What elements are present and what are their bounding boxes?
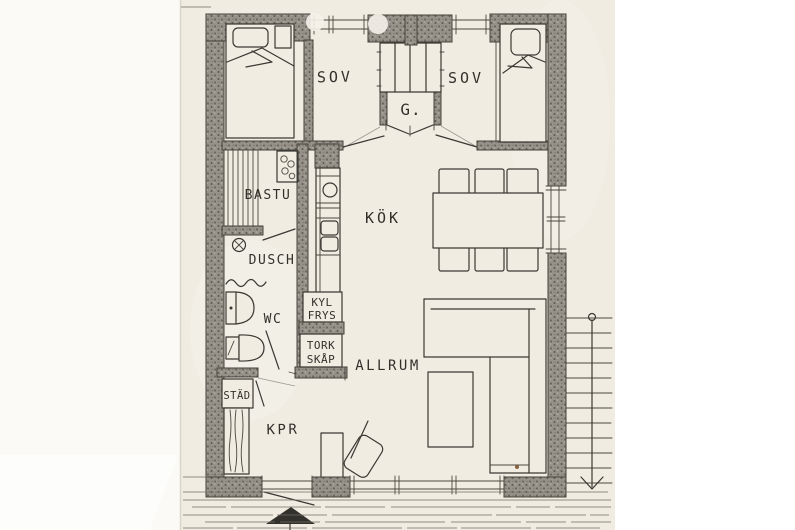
label-drying-line1: TORK xyxy=(307,339,336,352)
wc-sink xyxy=(226,292,254,324)
sauna-bench-edge xyxy=(222,226,263,235)
label-cleaning-closet: STÄD xyxy=(223,389,250,402)
label-living-room: ALLRUM xyxy=(355,358,421,374)
coat-rack xyxy=(224,408,249,474)
label-drying-line2: SKÅP xyxy=(307,353,336,366)
bed-right xyxy=(500,24,546,142)
paper-background xyxy=(0,0,795,530)
wall-fridge-divider xyxy=(299,322,344,334)
chair xyxy=(475,246,504,271)
wall-bottom-pier xyxy=(312,477,350,497)
paper-corner-highlight xyxy=(0,455,178,530)
label-shower: DUSCH xyxy=(249,253,296,268)
label-bedroom-right: SOV xyxy=(448,69,484,87)
wall-bottom-left xyxy=(206,477,262,497)
wall-right-upper xyxy=(548,14,566,186)
wall-drying-bottom xyxy=(295,367,347,378)
chair xyxy=(507,169,538,195)
wall-under-wc xyxy=(217,368,258,377)
chair xyxy=(439,169,469,195)
wall-left xyxy=(206,14,224,497)
wall-wardrobe-right xyxy=(434,92,441,125)
wall-right-lower xyxy=(548,253,566,478)
kitchen-counter xyxy=(316,168,340,293)
label-sauna: BASTU xyxy=(245,188,292,203)
label-hall: KPR xyxy=(266,422,299,439)
coffee-table xyxy=(428,372,473,447)
chair xyxy=(475,169,504,195)
dining-set xyxy=(433,169,543,271)
label-toilet: WC xyxy=(264,312,283,327)
label-bedroom-left: SOV xyxy=(317,68,353,87)
wc-toilet xyxy=(226,335,264,361)
label-fridge-line1: KYL xyxy=(311,296,332,309)
kitchen-wall-stub xyxy=(315,144,339,168)
dining-table xyxy=(433,193,543,248)
chair xyxy=(439,246,469,271)
paper-speck xyxy=(515,465,519,469)
paper-smudge xyxy=(368,14,388,34)
paper-smudge xyxy=(306,13,324,31)
wall-bedroom-left-partition xyxy=(304,40,313,144)
label-wardrobe: G. xyxy=(400,100,421,119)
chair xyxy=(507,246,538,271)
floor-plan-sketch: SOV SOV G. BASTU DUSCH WC KÖK KYL FRYS T… xyxy=(0,0,795,530)
label-kitchen: KÖK xyxy=(365,208,401,227)
wall-bottom-right xyxy=(504,477,566,497)
bed-left xyxy=(226,24,294,138)
label-fridge-line2: FRYS xyxy=(308,309,337,322)
